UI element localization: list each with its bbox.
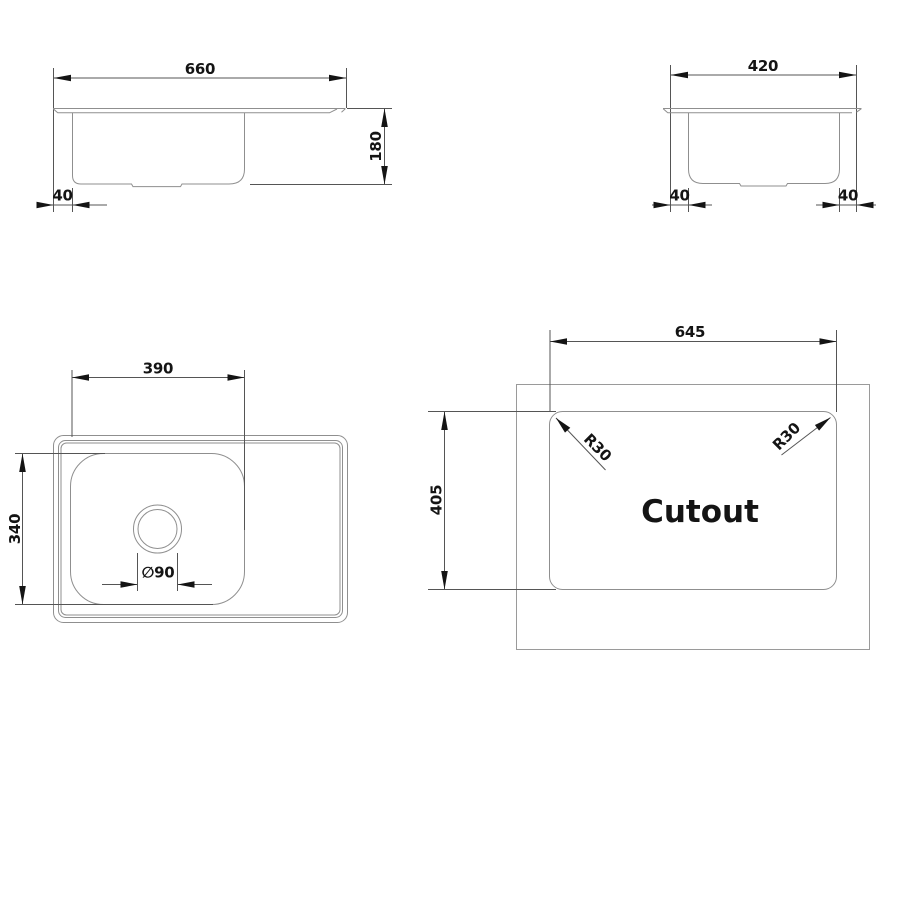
drain-outer-circle	[134, 505, 182, 553]
radius-label-left: R30	[580, 430, 615, 465]
dimension-label-40-right: 40	[838, 187, 858, 205]
arrowhead	[820, 338, 837, 345]
rim-end-tick	[663, 109, 668, 113]
arrowhead	[54, 75, 72, 82]
cutout-view: 645 405 R30 R30 Cutout	[428, 323, 870, 650]
arrowhead	[381, 109, 388, 128]
sink-dimension-drawing: 660 180 40 420 40	[0, 0, 900, 900]
arrowhead	[654, 202, 671, 209]
dimension-label-drain-diameter: ∅90	[142, 564, 175, 582]
arrowhead	[37, 202, 54, 209]
arrowhead	[72, 374, 89, 381]
cutout-text-label: Cutout	[641, 494, 759, 530]
arrowhead	[329, 75, 347, 82]
technical-drawing-sheet: 660 180 40 420 40	[0, 0, 900, 900]
bowl-profile	[689, 113, 840, 186]
radius-label-right: R30	[769, 419, 804, 454]
arrowhead	[73, 202, 90, 209]
arrowhead	[228, 374, 245, 381]
bowl-profile	[73, 113, 245, 187]
dimension-label-180: 180	[367, 131, 385, 161]
arrowhead	[441, 571, 448, 590]
front-elevation-view: 660 180 40	[37, 60, 393, 212]
arrowhead	[441, 412, 448, 431]
rim-end-tick	[342, 109, 346, 113]
dimension-label-40: 40	[52, 187, 72, 205]
dimension-label-390: 390	[143, 360, 173, 378]
arrowhead	[19, 454, 26, 473]
sink-inner-rim	[59, 441, 343, 618]
arrowhead	[689, 202, 706, 209]
sink-inner-rim	[61, 443, 340, 615]
rim-end-tick	[857, 109, 862, 113]
dimension-label-660: 660	[185, 60, 215, 78]
arrowhead	[671, 72, 689, 79]
arrowhead	[550, 338, 567, 345]
bowl-outline	[71, 454, 245, 605]
arrowhead	[839, 72, 857, 79]
dimension-label-40-left: 40	[669, 187, 689, 205]
arrowhead	[19, 586, 26, 605]
plan-view: 390 340 ∅90	[6, 360, 348, 623]
side-elevation-view: 420 40 40	[652, 57, 876, 212]
dimension-label-405: 405	[428, 485, 446, 515]
arrowhead	[857, 202, 874, 209]
sink-outer-rim	[54, 436, 348, 623]
dimension-label-340: 340	[6, 514, 24, 544]
arrowhead	[121, 581, 138, 588]
rim-underside-line	[58, 109, 337, 113]
arrowhead	[815, 418, 831, 431]
arrowhead	[178, 581, 195, 588]
dimension-label-645: 645	[675, 323, 705, 341]
arrowhead	[381, 166, 388, 185]
dimension-label-420: 420	[748, 57, 778, 75]
drain-inner-circle	[138, 510, 177, 549]
